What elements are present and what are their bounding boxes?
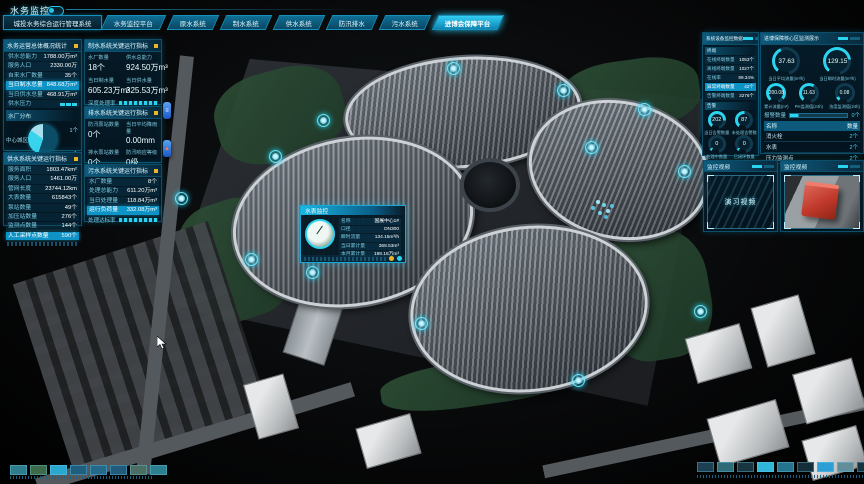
panel-title: 排水系统关键运行指标 (88, 108, 148, 117)
stat-row-highlight: 当日制水总量848.68万m³ (6, 81, 79, 89)
stat-row: 离线终端数量1027个 (705, 65, 756, 73)
panel-deco-lines (838, 165, 860, 168)
monitor-marker[interactable] (557, 84, 570, 97)
tab-water-supply[interactable]: 供水系统 (273, 15, 326, 30)
panel-title: 制水系统关键运行指标 (88, 41, 148, 50)
table-row[interactable]: 水表2个 (764, 142, 860, 153)
stat-cell: 当日供水量325.53万m³ (123, 75, 161, 98)
legend-swatch[interactable] (110, 465, 127, 475)
popup-row: 口径DN300 (339, 226, 401, 233)
legend-swatch[interactable] (737, 462, 754, 472)
panel-menu-icon[interactable] (154, 44, 158, 48)
legend-swatch[interactable] (150, 465, 167, 475)
video-feed: 演习视频 (708, 176, 773, 228)
stat-cell: 当日制水量605.23万m³ (85, 75, 123, 98)
monitor-marker[interactable] (269, 150, 282, 163)
tab-water-monitor-platform[interactable]: 水务监控平台 (101, 15, 167, 30)
stat-row: 服务面积1803.47km² (6, 166, 79, 174)
stat-row: 当日供水总量468.91万m³ (6, 91, 79, 99)
sewage-panel: 污水系统关键运行指标 水厂数量8个 处理总能力611.20万m³ 当日处理量11… (84, 164, 162, 222)
flow-gauge: 129.15 当日瞬时流量(m³/h) (819, 47, 855, 81)
legend-bottom-right (697, 462, 864, 472)
monitor-marker[interactable] (678, 165, 691, 178)
section-label: 终端 (705, 47, 756, 55)
stat-row: 在线终端数量1053个 (705, 56, 756, 64)
monitor-marker[interactable] (572, 374, 585, 387)
panel-menu-icon[interactable] (154, 169, 158, 173)
pie-chart[interactable] (28, 124, 58, 154)
treatment-rate-bar: 处理达标率 (88, 216, 158, 224)
legend-swatch[interactable] (30, 465, 47, 475)
stat-row: 当日处理量118.84万m³ (87, 197, 159, 205)
tab-flood-drainage[interactable]: 防汛排水 (326, 15, 379, 30)
quality-gauge: 0.08 浊度监测值(24h) (829, 83, 860, 109)
legend-swatch[interactable] (90, 465, 107, 475)
panel-title: 供水系统关键运行指标 (7, 154, 67, 163)
video-panel-exercise[interactable]: 监控视频 演习视频 (703, 160, 778, 232)
overview-panel: 水务运营总体概况统计 供水总能力1788.00万m³ 服务人口2330.00万 … (3, 39, 82, 151)
stat-row: 水厂数量8个 (87, 178, 159, 186)
alarm-gauge: 0 处理中数量 (706, 135, 727, 159)
asset-table: 名称数量 消火栓2个 水表2个 压力监测点2个 (764, 121, 860, 164)
main-nav-tabs: 水务监控平台 原水系统 制水系统 供水系统 防汛排水 污水系统 进博会保障平台 (104, 15, 501, 28)
table-row[interactable]: 消火栓2个 (764, 131, 860, 142)
popup-row: 名称国展中心1# (339, 218, 401, 225)
quality-gauge: 11.63 PH监测值(24h) (795, 83, 823, 109)
legend-swatch[interactable] (817, 462, 834, 472)
monitor-marker[interactable] (317, 114, 330, 127)
video-frame[interactable]: 演习视频 (707, 175, 774, 229)
stat-row: 供水压力 (6, 100, 79, 108)
device-pin-gauge[interactable]: ≡ (163, 102, 171, 119)
panel-menu-icon[interactable] (154, 111, 158, 115)
legend-swatch[interactable] (70, 465, 87, 475)
popup-warn-dot[interactable] (389, 256, 394, 261)
alarm-gauge: 0 已闭环数量 (734, 135, 755, 159)
stat-row-highlight: 运行负荷量332.08万m³ (87, 206, 159, 214)
production-panel: 制水系统关键运行指标 水厂数量18个 供水总能力924.50万m³ 当日制水量6… (84, 39, 162, 105)
monitor-marker[interactable] (306, 266, 319, 279)
tab-sewage[interactable]: 污水系统 (379, 15, 432, 30)
legend-swatch[interactable] (717, 462, 734, 472)
monitor-marker[interactable] (447, 62, 460, 75)
video-feed (785, 176, 859, 228)
legend-swatch[interactable] (50, 465, 67, 475)
monitor-marker[interactable] (245, 253, 258, 266)
panel-title: 监控视频 (707, 162, 730, 171)
stat-row: 加压站数量276个 (6, 213, 79, 221)
stat-row: 在线率99.34% (705, 74, 756, 82)
panel-title: 进博保障核心区监测展示 (764, 35, 819, 42)
video-panel-hydrant[interactable]: 监控视频 (780, 160, 864, 232)
popup-info-dot[interactable] (397, 256, 402, 261)
alarm-count-slider[interactable]: 报警数量 0个 (764, 111, 860, 119)
pie-callout: 1个 (69, 126, 78, 134)
pressure-bar (60, 103, 77, 106)
quality-gauge: 200.08 累计流量(m³) (764, 83, 788, 109)
legend-swatch[interactable] (857, 462, 864, 472)
stat-row: 服务人口2330.00万 (6, 62, 79, 70)
stat-row: 处理总能力611.20万m³ (87, 187, 159, 195)
central-hub (460, 158, 520, 212)
monitor-marker[interactable] (638, 103, 651, 116)
panel-title: 污水系统关键运行指标 (88, 166, 148, 175)
alarm-slider-track[interactable] (789, 113, 848, 118)
drainage-panel: 排水系统关键运行指标 防汛泵站数量0个 当日平均降雨量0.00mm 排水泵站数量… (84, 106, 162, 163)
panel-deco-lines (752, 165, 774, 168)
stat-cell: 供水总能力924.50万m³ (123, 52, 161, 75)
monitor-marker[interactable] (175, 192, 188, 205)
device-pin-arrow[interactable]: ▲ (163, 140, 171, 157)
panel-menu-icon[interactable] (74, 157, 78, 161)
monitor-marker[interactable] (585, 141, 598, 154)
stat-row: 告警终端数量3276个 (705, 92, 756, 100)
legend-swatch[interactable] (10, 465, 27, 475)
legend-swatch[interactable] (757, 462, 774, 472)
monitor-marker[interactable] (694, 305, 707, 318)
stat-row: 泵站数量49个 (6, 204, 79, 212)
hydrant-box (801, 183, 839, 220)
alarm-gauge: 87 未处理告警数 (732, 111, 757, 135)
panel-title: 监控视频 (784, 162, 807, 171)
legend-swatch[interactable] (130, 465, 147, 475)
header-divider (66, 9, 366, 10)
video-frame[interactable] (784, 175, 860, 229)
stat-row: 大表数量615843个 (6, 194, 79, 202)
stat-cell: 当日平均降雨量0.00mm (123, 119, 161, 147)
stat-cell: 水厂数量18个 (85, 52, 123, 75)
flow-gauge: 37.63 当日平均流量(m³/h) (768, 47, 804, 81)
monitor-marker[interactable] (415, 317, 428, 330)
fountain-sparkle (596, 200, 600, 204)
system-title: 城投水务综合运行管理系统 (3, 15, 102, 30)
stat-row: 管网长度23744.12km (6, 185, 79, 193)
legend-swatch[interactable] (777, 462, 794, 472)
alarm-gauge: 202 当日告警数量 (704, 111, 729, 135)
panel-deco-lines (838, 37, 860, 40)
device-panel: 系统设备监控数据 终端 在线终端数量1053个 离线终端数量1027个 在线率9… (702, 32, 759, 156)
expo-panel: 进博保障核心区监测展示 37.63 当日平均流量(m³/h) 129.15 当日… (760, 32, 864, 154)
popup-row: 当日累计量368.53m³ (339, 243, 401, 250)
stat-row: 服务人口1461.00万 (6, 175, 79, 183)
stat-row: 监测点数量144个 (6, 222, 79, 230)
meter-dial (305, 219, 335, 249)
supply-panel: 供水系统关键运行指标 服务面积1803.47km² 服务人口1461.00万 管… (3, 152, 82, 226)
stat-row-highlight: 人工采样点数量590个 (6, 232, 79, 240)
stat-row-highlight: 异常终端数量42个 (705, 83, 756, 91)
dashboard-root: ≡ ▲ 水务监控 城投水务综合运行管理系统 水务监控平台 原水系统 制水系统 供… (0, 0, 864, 484)
mouse-cursor (157, 336, 167, 355)
pie-legend: 中心城区 (6, 136, 28, 144)
legend-swatch[interactable] (837, 462, 854, 472)
legend-swatch[interactable] (797, 462, 814, 472)
stat-row: 自来水厂数量35个 (6, 72, 79, 80)
legend-swatch[interactable] (697, 462, 714, 472)
tab-expo-support-platform[interactable]: 进博会保障平台 (432, 15, 504, 30)
legend-ticks (697, 475, 864, 478)
panel-menu-icon[interactable] (74, 44, 78, 48)
section-label: 告警 (705, 102, 756, 110)
popup-title: 水表监控 (301, 206, 405, 215)
tab-raw-water[interactable]: 原水系统 (167, 15, 220, 30)
legend-bottom-left (10, 465, 167, 475)
stat-row: 供水总能力1788.00万m³ (6, 53, 79, 61)
stat-cell: 防汛泵站数量0个 (85, 119, 123, 147)
legend-ticks (10, 476, 152, 479)
popup-footer-deco (304, 257, 386, 261)
panel-deco-lines (743, 37, 758, 40)
panel-footer-deco (7, 242, 78, 246)
panel-title: 水务运营总体概况统计 (7, 41, 67, 50)
popup-row: 瞬时流量134.15m³/h (339, 234, 401, 241)
tab-water-production[interactable]: 制水系统 (220, 15, 273, 30)
water-meter-popup: 水表监控 名称国展中心1# 口径DN300 瞬时流量134.15m³/h 当日累… (300, 205, 406, 263)
section-label: 水厂分布 (6, 110, 79, 121)
panel-title: 系统设备监控数据 (706, 36, 743, 42)
